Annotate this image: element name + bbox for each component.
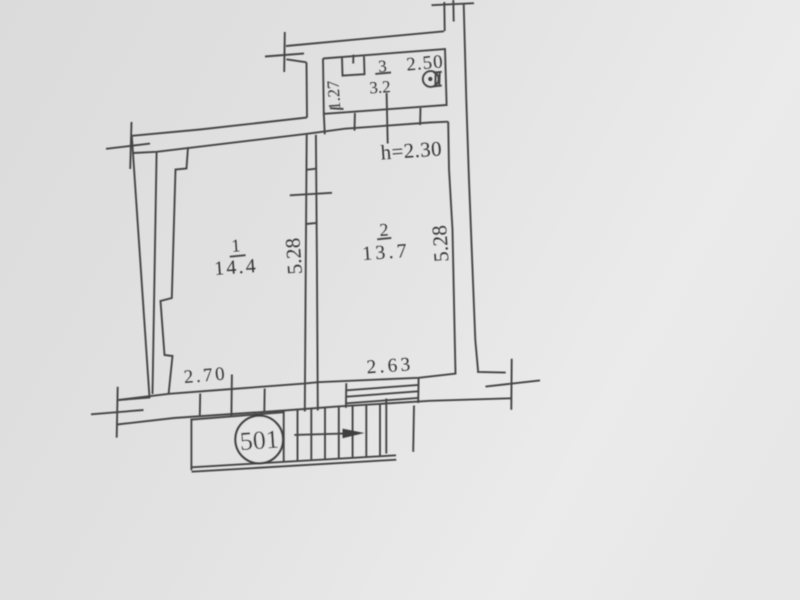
svg-text:3.2: 3.2 xyxy=(369,77,392,97)
svg-text:14.4: 14.4 xyxy=(213,255,258,280)
svg-text:2.63: 2.63 xyxy=(366,354,414,378)
svg-text:2.50: 2.50 xyxy=(406,51,445,75)
svg-text:2: 2 xyxy=(379,219,389,240)
svg-text:5.28: 5.28 xyxy=(280,237,307,275)
svg-text:13.7: 13.7 xyxy=(361,240,410,265)
svg-text:5.28: 5.28 xyxy=(427,224,454,262)
svg-text:501: 501 xyxy=(239,424,280,456)
svg-text:h=2.30: h=2.30 xyxy=(380,136,443,164)
svg-text:1: 1 xyxy=(231,235,241,256)
svg-text:2.70: 2.70 xyxy=(183,363,228,388)
svg-text:1.27: 1.27 xyxy=(323,79,344,111)
